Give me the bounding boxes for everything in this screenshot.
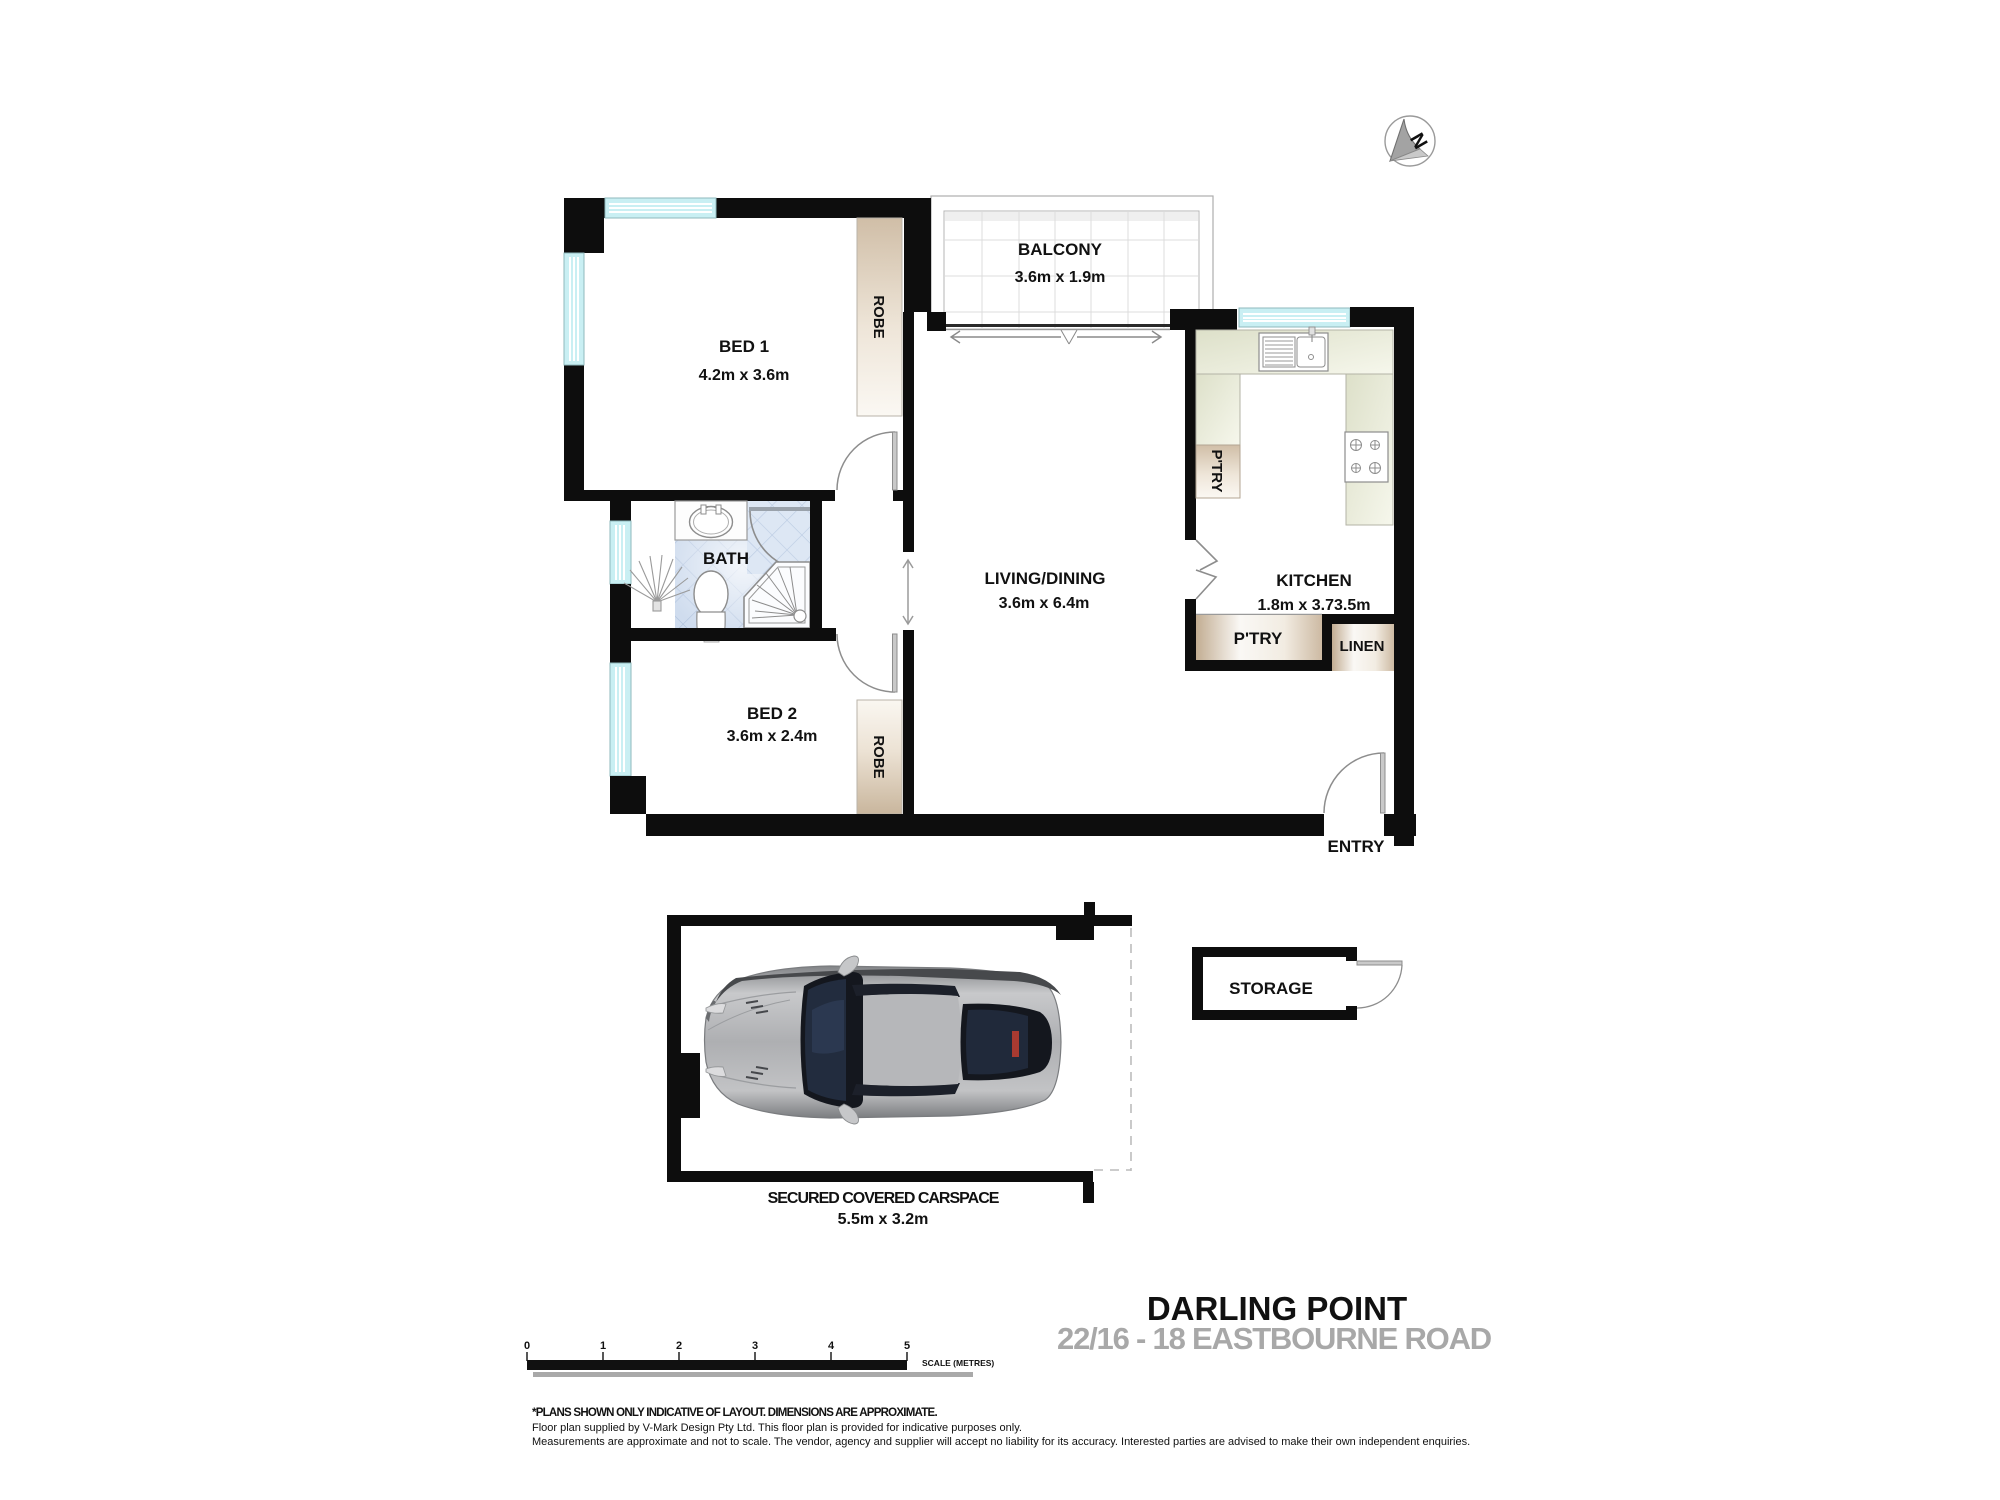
svg-text:BED 2: BED 2 bbox=[747, 704, 797, 723]
svg-text:LIVING/DINING: LIVING/DINING bbox=[985, 569, 1106, 588]
svg-text:Measurements are approximate a: Measurements are approximate and not to … bbox=[532, 1436, 1470, 1448]
svg-text:BALCONY: BALCONY bbox=[1018, 240, 1103, 259]
svg-text:LINEN: LINEN bbox=[1340, 638, 1385, 655]
svg-text:5.5m x 3.2m: 5.5m x 3.2m bbox=[838, 1211, 929, 1228]
svg-text:P'TRY: P'TRY bbox=[1208, 449, 1225, 492]
svg-text:SCALE (METRES): SCALE (METRES) bbox=[922, 1358, 994, 1368]
svg-text:4: 4 bbox=[828, 1340, 835, 1352]
svg-text:ROBE: ROBE bbox=[870, 295, 887, 338]
svg-text:SECURED COVERED CARSPACE: SECURED COVERED CARSPACE bbox=[768, 1190, 1000, 1207]
svg-text:5: 5 bbox=[904, 1340, 910, 1352]
svg-text:Floor plan supplied by V-Mark: Floor plan supplied by V-Mark Design Pty… bbox=[532, 1422, 1022, 1434]
svg-text:ENTRY: ENTRY bbox=[1328, 837, 1386, 856]
svg-text:22/16 - 18 EASTBOURNE ROAD: 22/16 - 18 EASTBOURNE ROAD bbox=[1057, 1321, 1492, 1356]
svg-text:*PLANS SHOWN ONLY INDICATIVE O: *PLANS SHOWN ONLY INDICATIVE OF LAYOUT. … bbox=[532, 1407, 937, 1419]
svg-text:3.6m x 1.9m: 3.6m x 1.9m bbox=[1015, 269, 1106, 286]
svg-text:3.6m x 6.4m: 3.6m x 6.4m bbox=[999, 595, 1090, 612]
svg-text:1.8m x 3.73.5m: 1.8m x 3.73.5m bbox=[1258, 597, 1371, 614]
svg-text:BATH: BATH bbox=[703, 549, 749, 568]
svg-text:BED 1: BED 1 bbox=[719, 337, 769, 356]
svg-text:STORAGE: STORAGE bbox=[1229, 979, 1313, 998]
svg-text:3.6m x 2.4m: 3.6m x 2.4m bbox=[727, 728, 818, 745]
svg-text:4.2m x 3.6m: 4.2m x 3.6m bbox=[699, 367, 790, 384]
svg-text:P'TRY: P'TRY bbox=[1234, 629, 1283, 648]
svg-text:ROBE: ROBE bbox=[870, 735, 887, 778]
svg-text:3: 3 bbox=[752, 1340, 758, 1352]
svg-text:2: 2 bbox=[676, 1340, 682, 1352]
svg-text:1: 1 bbox=[600, 1340, 606, 1352]
svg-text:0: 0 bbox=[524, 1340, 530, 1352]
svg-text:KITCHEN: KITCHEN bbox=[1276, 571, 1352, 590]
